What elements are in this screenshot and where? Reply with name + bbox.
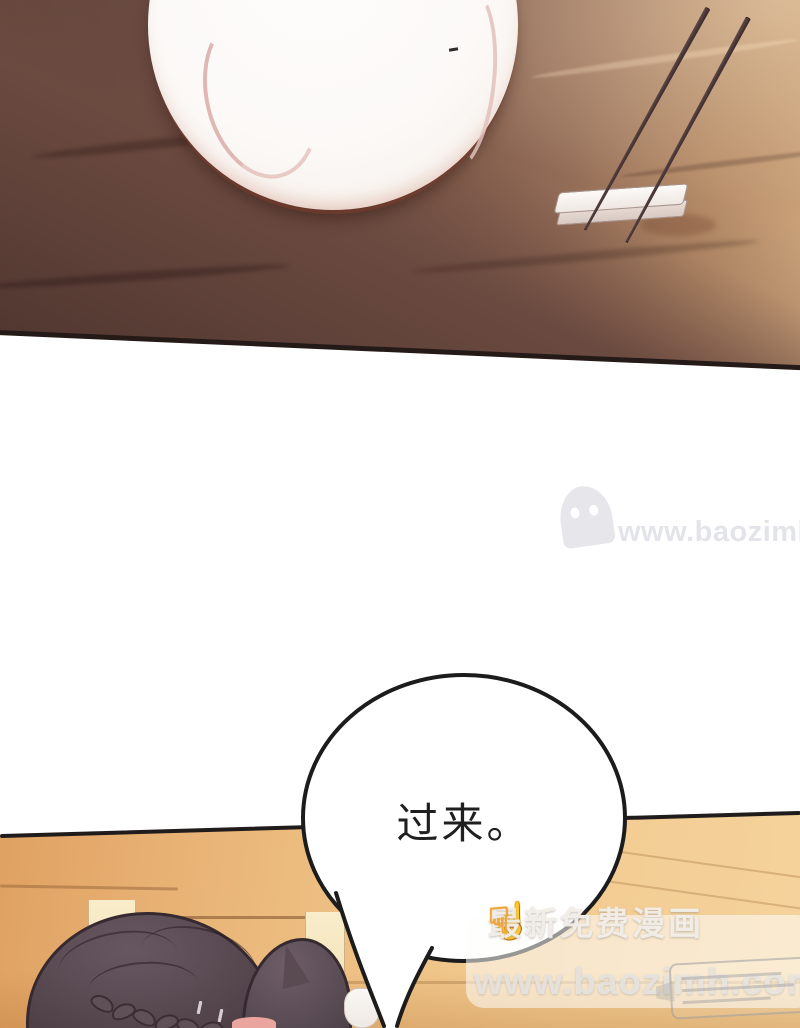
ghost-eye bbox=[589, 504, 599, 516]
wall-grain-line bbox=[557, 842, 800, 880]
wood-light-streak bbox=[531, 36, 799, 81]
watermark-middle: www.baozimh.com bbox=[556, 482, 800, 582]
logo-line bbox=[681, 972, 781, 980]
watermark-bottom-line1: 最新免费漫画 bbox=[488, 897, 704, 945]
wood-grain-streak bbox=[0, 261, 290, 292]
finger-down-icon bbox=[488, 902, 510, 940]
logo-line bbox=[682, 983, 794, 991]
chopstick bbox=[623, 16, 751, 244]
wood-grain-streak bbox=[620, 147, 800, 180]
watermark-middle-text: www.baozimh.com bbox=[618, 516, 800, 549]
wood-grain-streak bbox=[410, 237, 759, 276]
logo-line bbox=[683, 996, 771, 1003]
ghost-logo-icon bbox=[556, 483, 616, 550]
comic-page: www.baozimh.com 过来。 最新免费 bbox=[0, 0, 800, 1028]
wall-plank-line bbox=[0, 884, 178, 890]
sketched-logo-stamp bbox=[669, 956, 800, 1019]
speech-bubble-text: 过来。 bbox=[334, 801, 594, 847]
ghost-eye bbox=[570, 507, 580, 519]
table-panel bbox=[0, 0, 800, 380]
character-face-blush bbox=[232, 1017, 276, 1028]
white-cup bbox=[344, 988, 380, 1028]
